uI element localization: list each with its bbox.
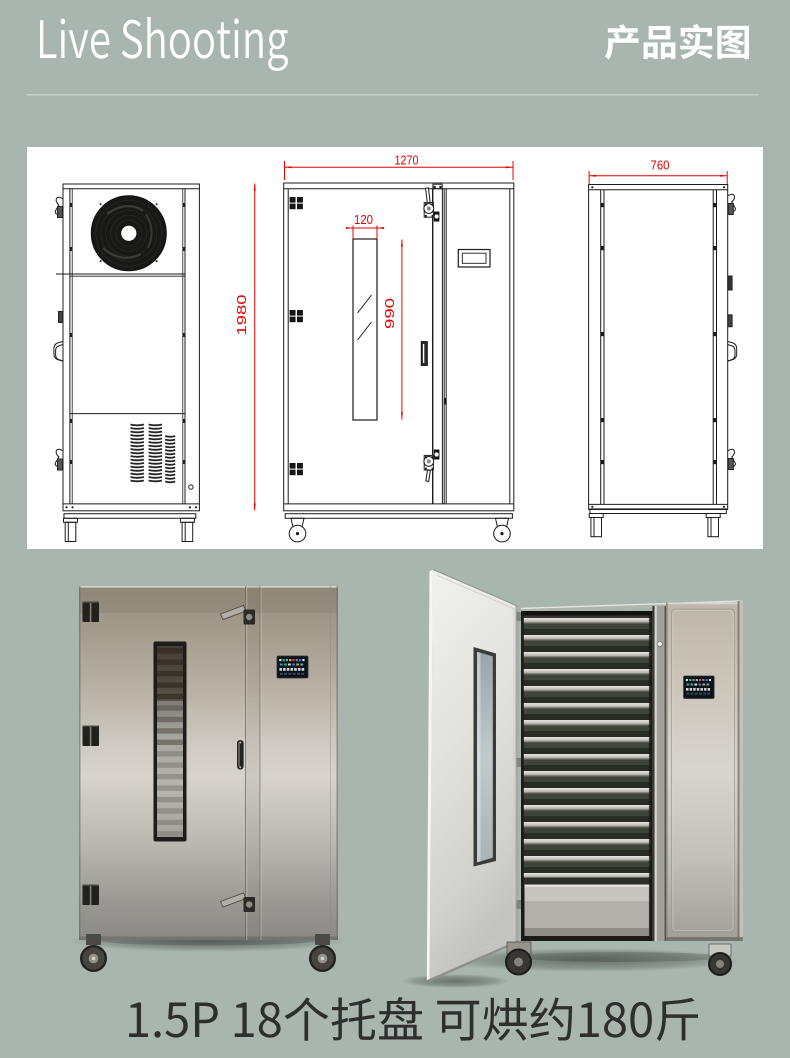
svg-text:760: 760 <box>651 158 670 173</box>
svg-text:1270: 1270 <box>395 152 419 167</box>
svg-text:990: 990 <box>382 298 397 329</box>
svg-text:120: 120 <box>354 212 373 227</box>
svg-text:1980: 1980 <box>234 295 249 336</box>
